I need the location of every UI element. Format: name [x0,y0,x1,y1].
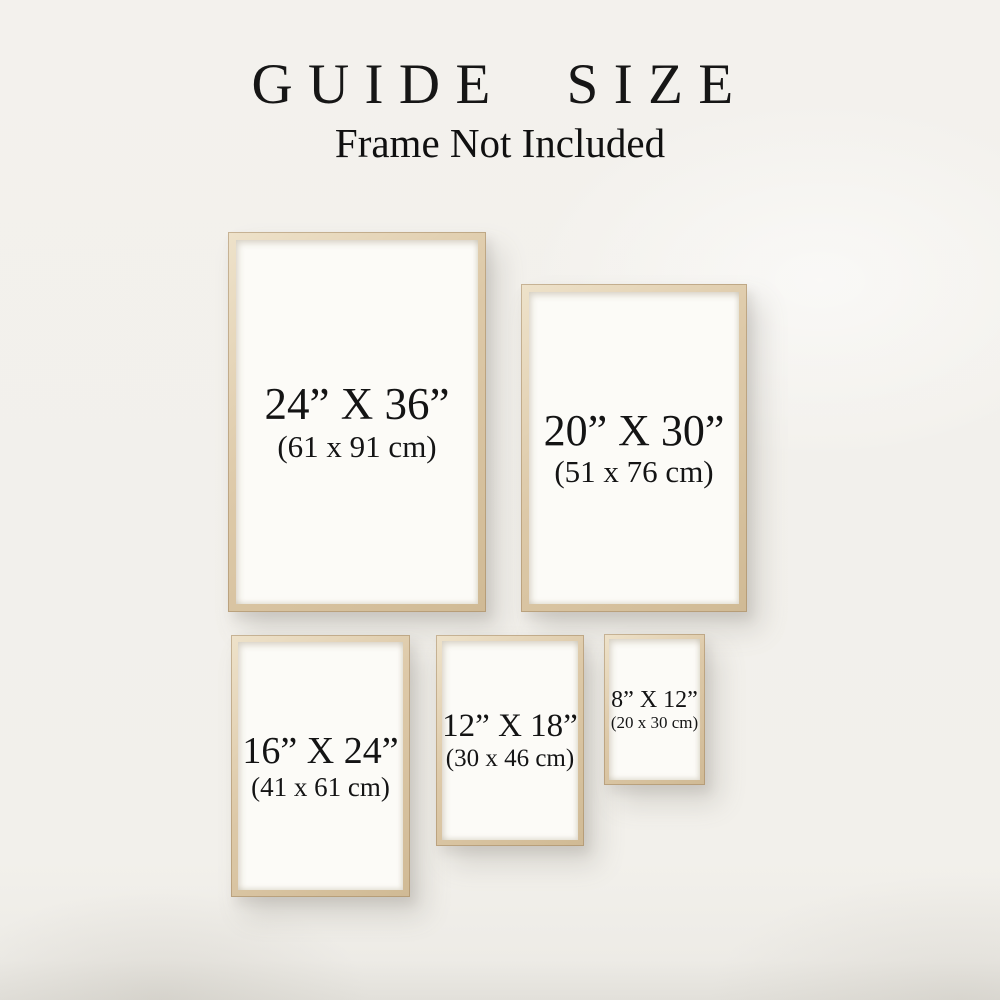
size-label-cm: (41 x 61 cm) [251,772,390,802]
size-label-inches: 16” X 24” [242,730,398,773]
frame-12x18: 12” X 18” (30 x 46 cm) [436,635,584,846]
size-label-cm: (51 x 76 cm) [554,455,713,490]
subtitle: Frame Not Included [0,123,1000,164]
size-label-cm: (20 x 30 cm) [611,713,698,732]
frame-24x36: 24” X 36” (61 x 91 cm) [228,232,486,612]
page-title: GUIDE SIZE [0,56,1000,113]
size-label-cm: (61 x 91 cm) [277,430,436,465]
frame-16x24: 16” X 24” (41 x 61 cm) [231,635,410,897]
frame-8x12-paper: 8” X 12” (20 x 30 cm) [609,639,700,780]
size-label-inches: 8” X 12” [611,687,698,714]
size-guide-poster: GUIDE SIZE Frame Not Included 24” X 36” … [0,0,1000,1000]
frame-8x12: 8” X 12” (20 x 30 cm) [604,634,705,785]
frame-20x30: 20” X 30” (51 x 76 cm) [521,284,747,612]
size-label-inches: 20” X 30” [544,406,725,455]
frame-16x24-paper: 16” X 24” (41 x 61 cm) [238,642,403,890]
frame-24x36-paper: 24” X 36” (61 x 91 cm) [236,240,478,604]
size-label-cm: (30 x 46 cm) [446,745,574,773]
size-label-inches: 24” X 36” [265,379,450,429]
frame-12x18-paper: 12” X 18” (30 x 46 cm) [442,641,578,840]
frame-20x30-paper: 20” X 30” (51 x 76 cm) [529,292,739,604]
size-label-inches: 12” X 18” [442,708,578,745]
header: GUIDE SIZE Frame Not Included [0,56,1000,164]
